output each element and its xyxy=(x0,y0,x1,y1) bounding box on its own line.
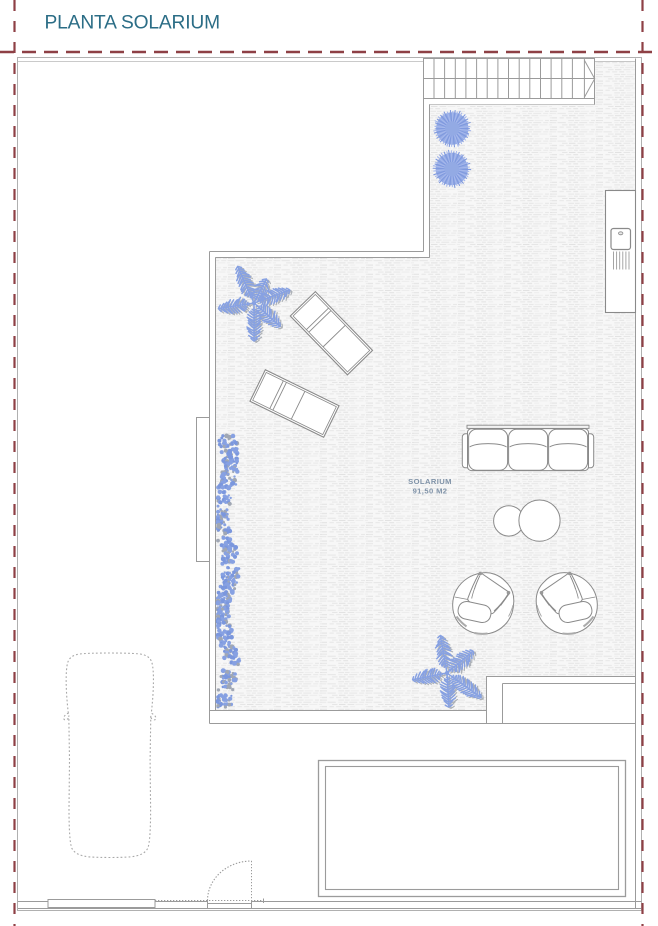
svg-text:91,50 M2: 91,50 M2 xyxy=(413,487,448,496)
svg-text:PLANTA SOLARIUM: PLANTA SOLARIUM xyxy=(45,13,220,34)
svg-text:SOLARIUM: SOLARIUM xyxy=(408,477,452,486)
